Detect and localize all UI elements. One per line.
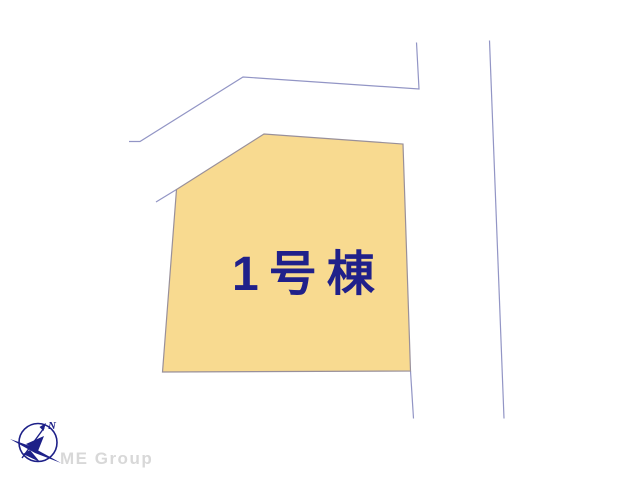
road-edge-below-parcel-line (411, 371, 414, 419)
site-plan-page: 1号棟 N ME Group (0, 0, 640, 480)
road-right-boundary-line (490, 41, 505, 419)
site-plan-drawing: 1号棟 (0, 0, 640, 480)
brand-watermark: ME Group (60, 449, 153, 469)
compass-logo: N (8, 413, 66, 471)
parcel-1-label: 1号棟 (232, 248, 385, 301)
road-edge-left-of-parcel-line (156, 190, 177, 203)
road-upper-boundary-line (129, 43, 419, 142)
compass-north-label: N (47, 420, 57, 432)
